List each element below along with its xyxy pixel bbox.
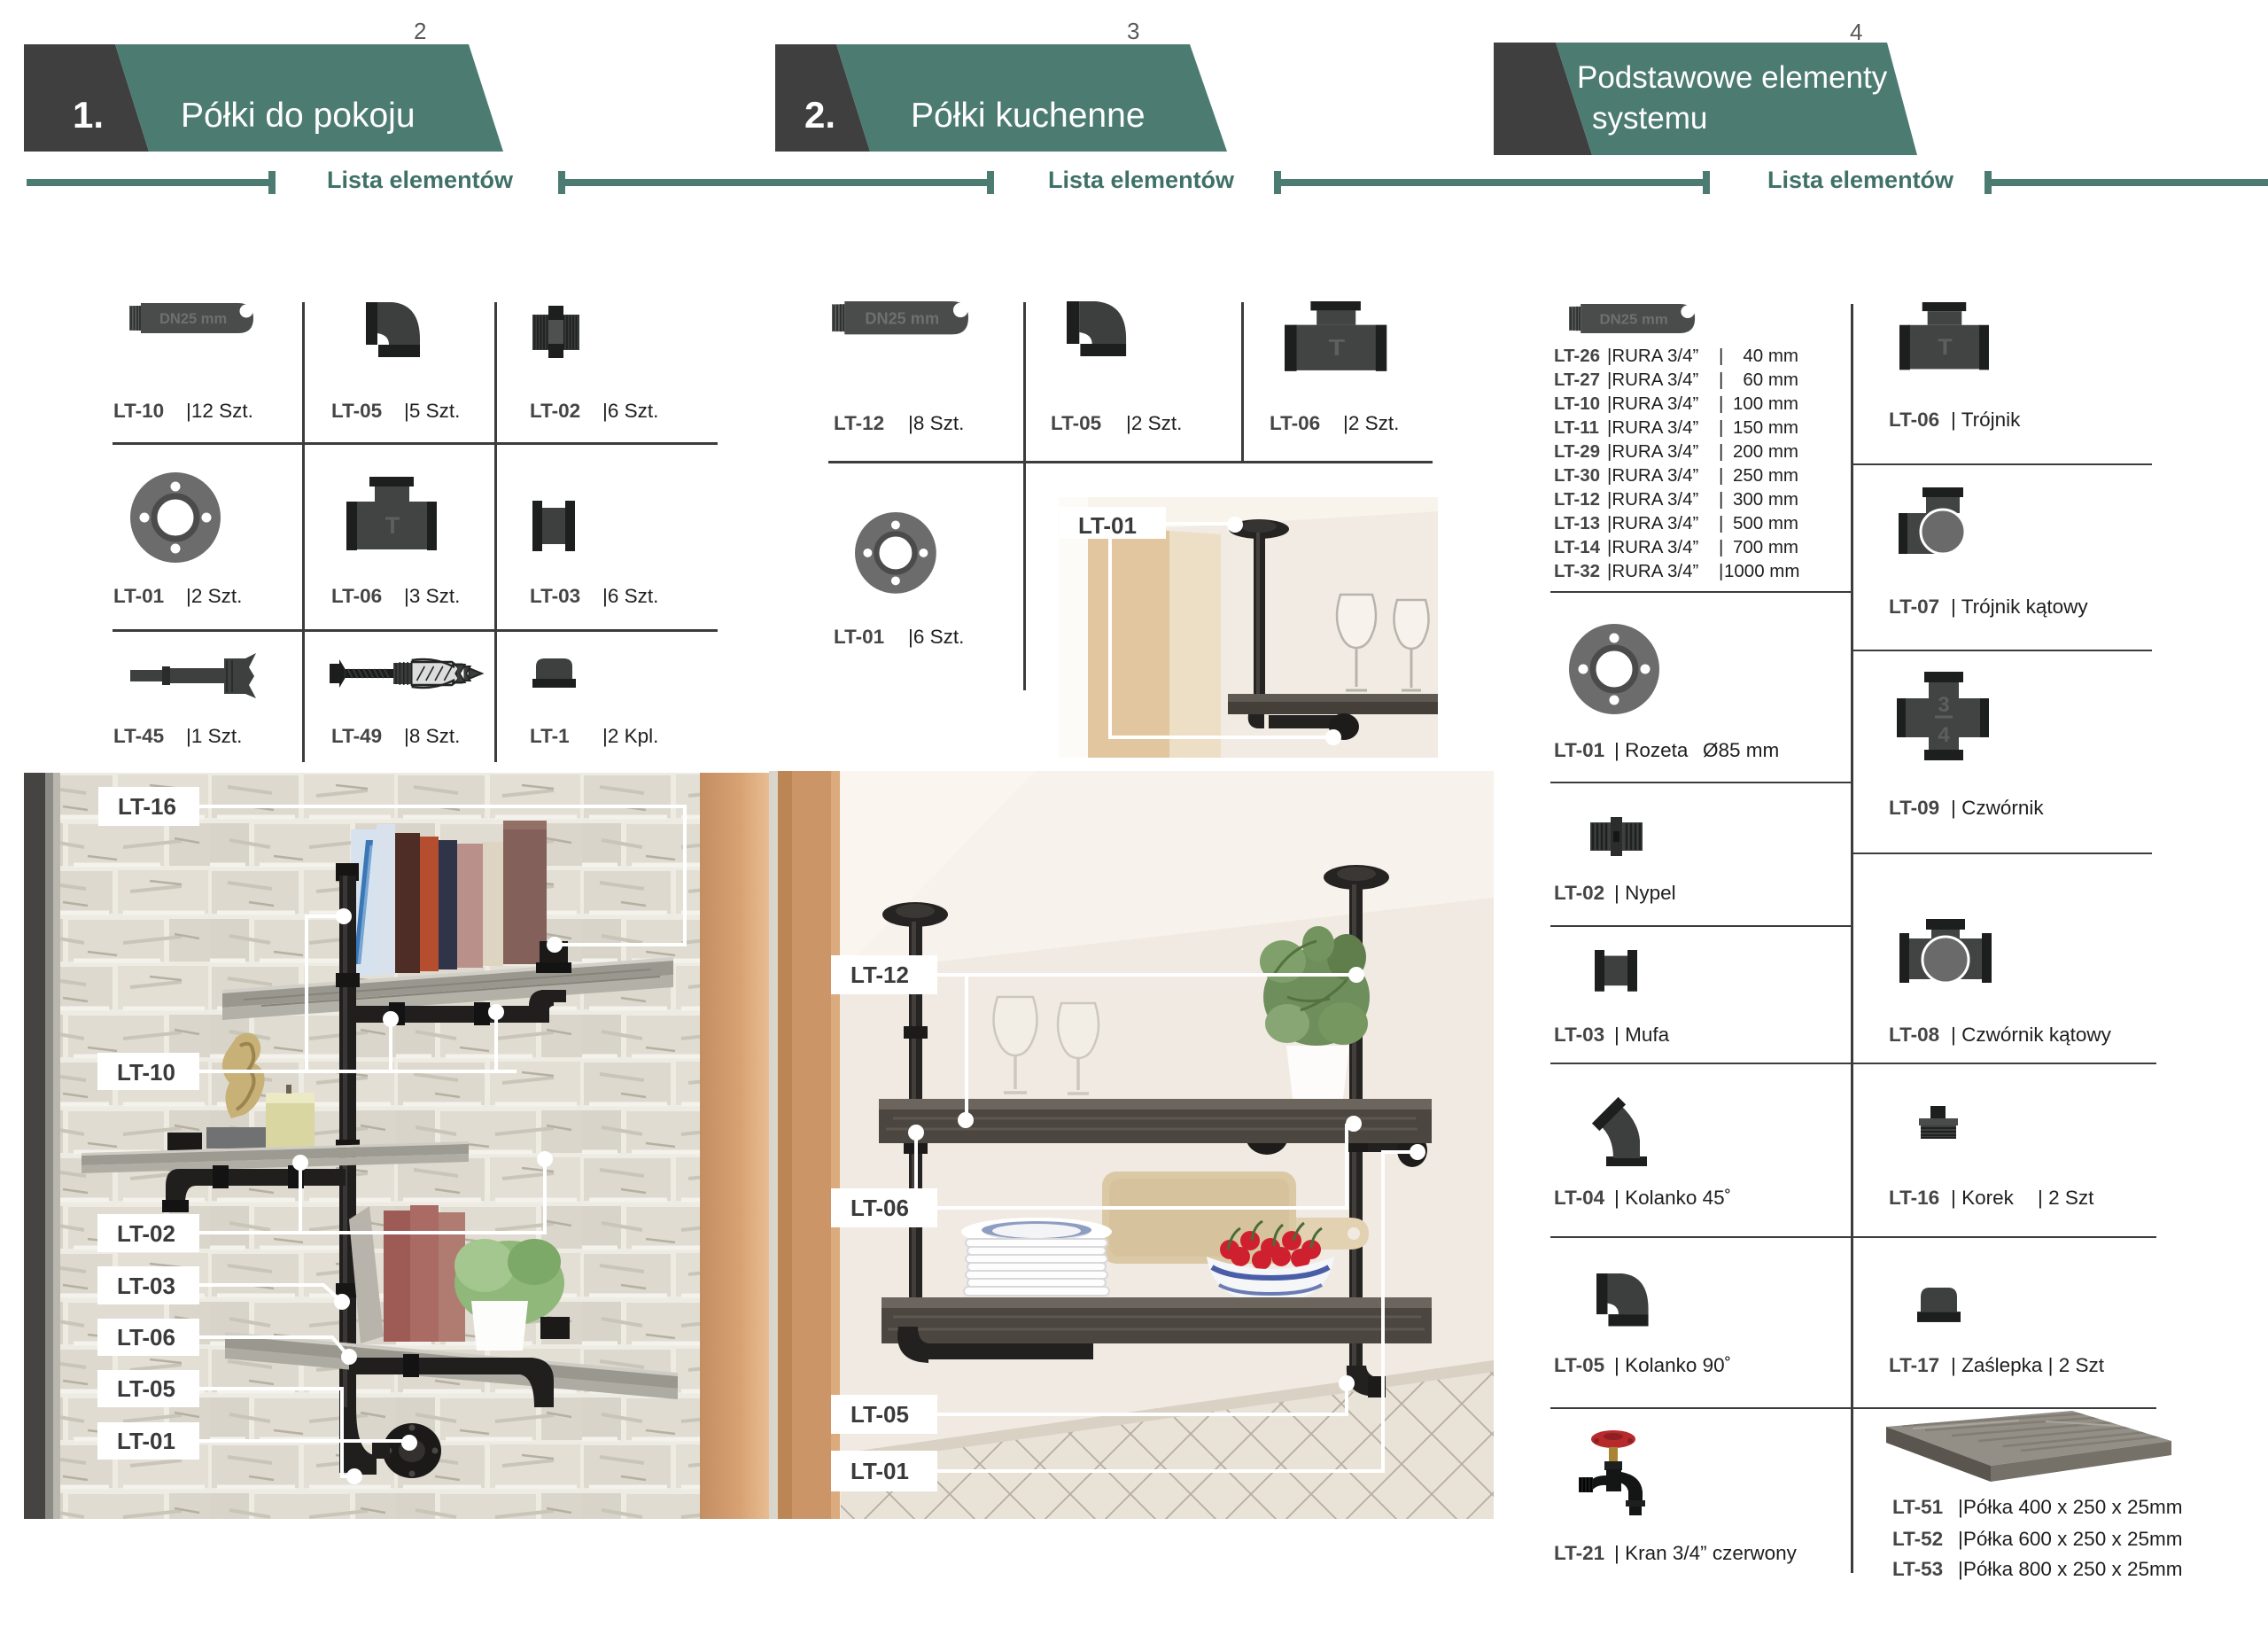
svg-text:LT-12: LT-12 (850, 962, 909, 988)
svg-text:LT-05: LT-05 (117, 1375, 175, 1402)
svg-text:LT-03: LT-03 (117, 1273, 175, 1299)
svg-text:LT-05: LT-05 (850, 1401, 909, 1428)
svg-text:LT-06: LT-06 (850, 1195, 909, 1221)
svg-text:LT-01: LT-01 (850, 1458, 909, 1484)
svg-text:LT-01: LT-01 (1078, 512, 1137, 539)
svg-text:LT-01: LT-01 (117, 1428, 175, 1454)
svg-text:LT-16: LT-16 (118, 793, 176, 820)
svg-text:LT-06: LT-06 (117, 1324, 175, 1351)
svg-text:LT-10: LT-10 (117, 1059, 175, 1086)
svg-text:LT-02: LT-02 (117, 1220, 175, 1247)
